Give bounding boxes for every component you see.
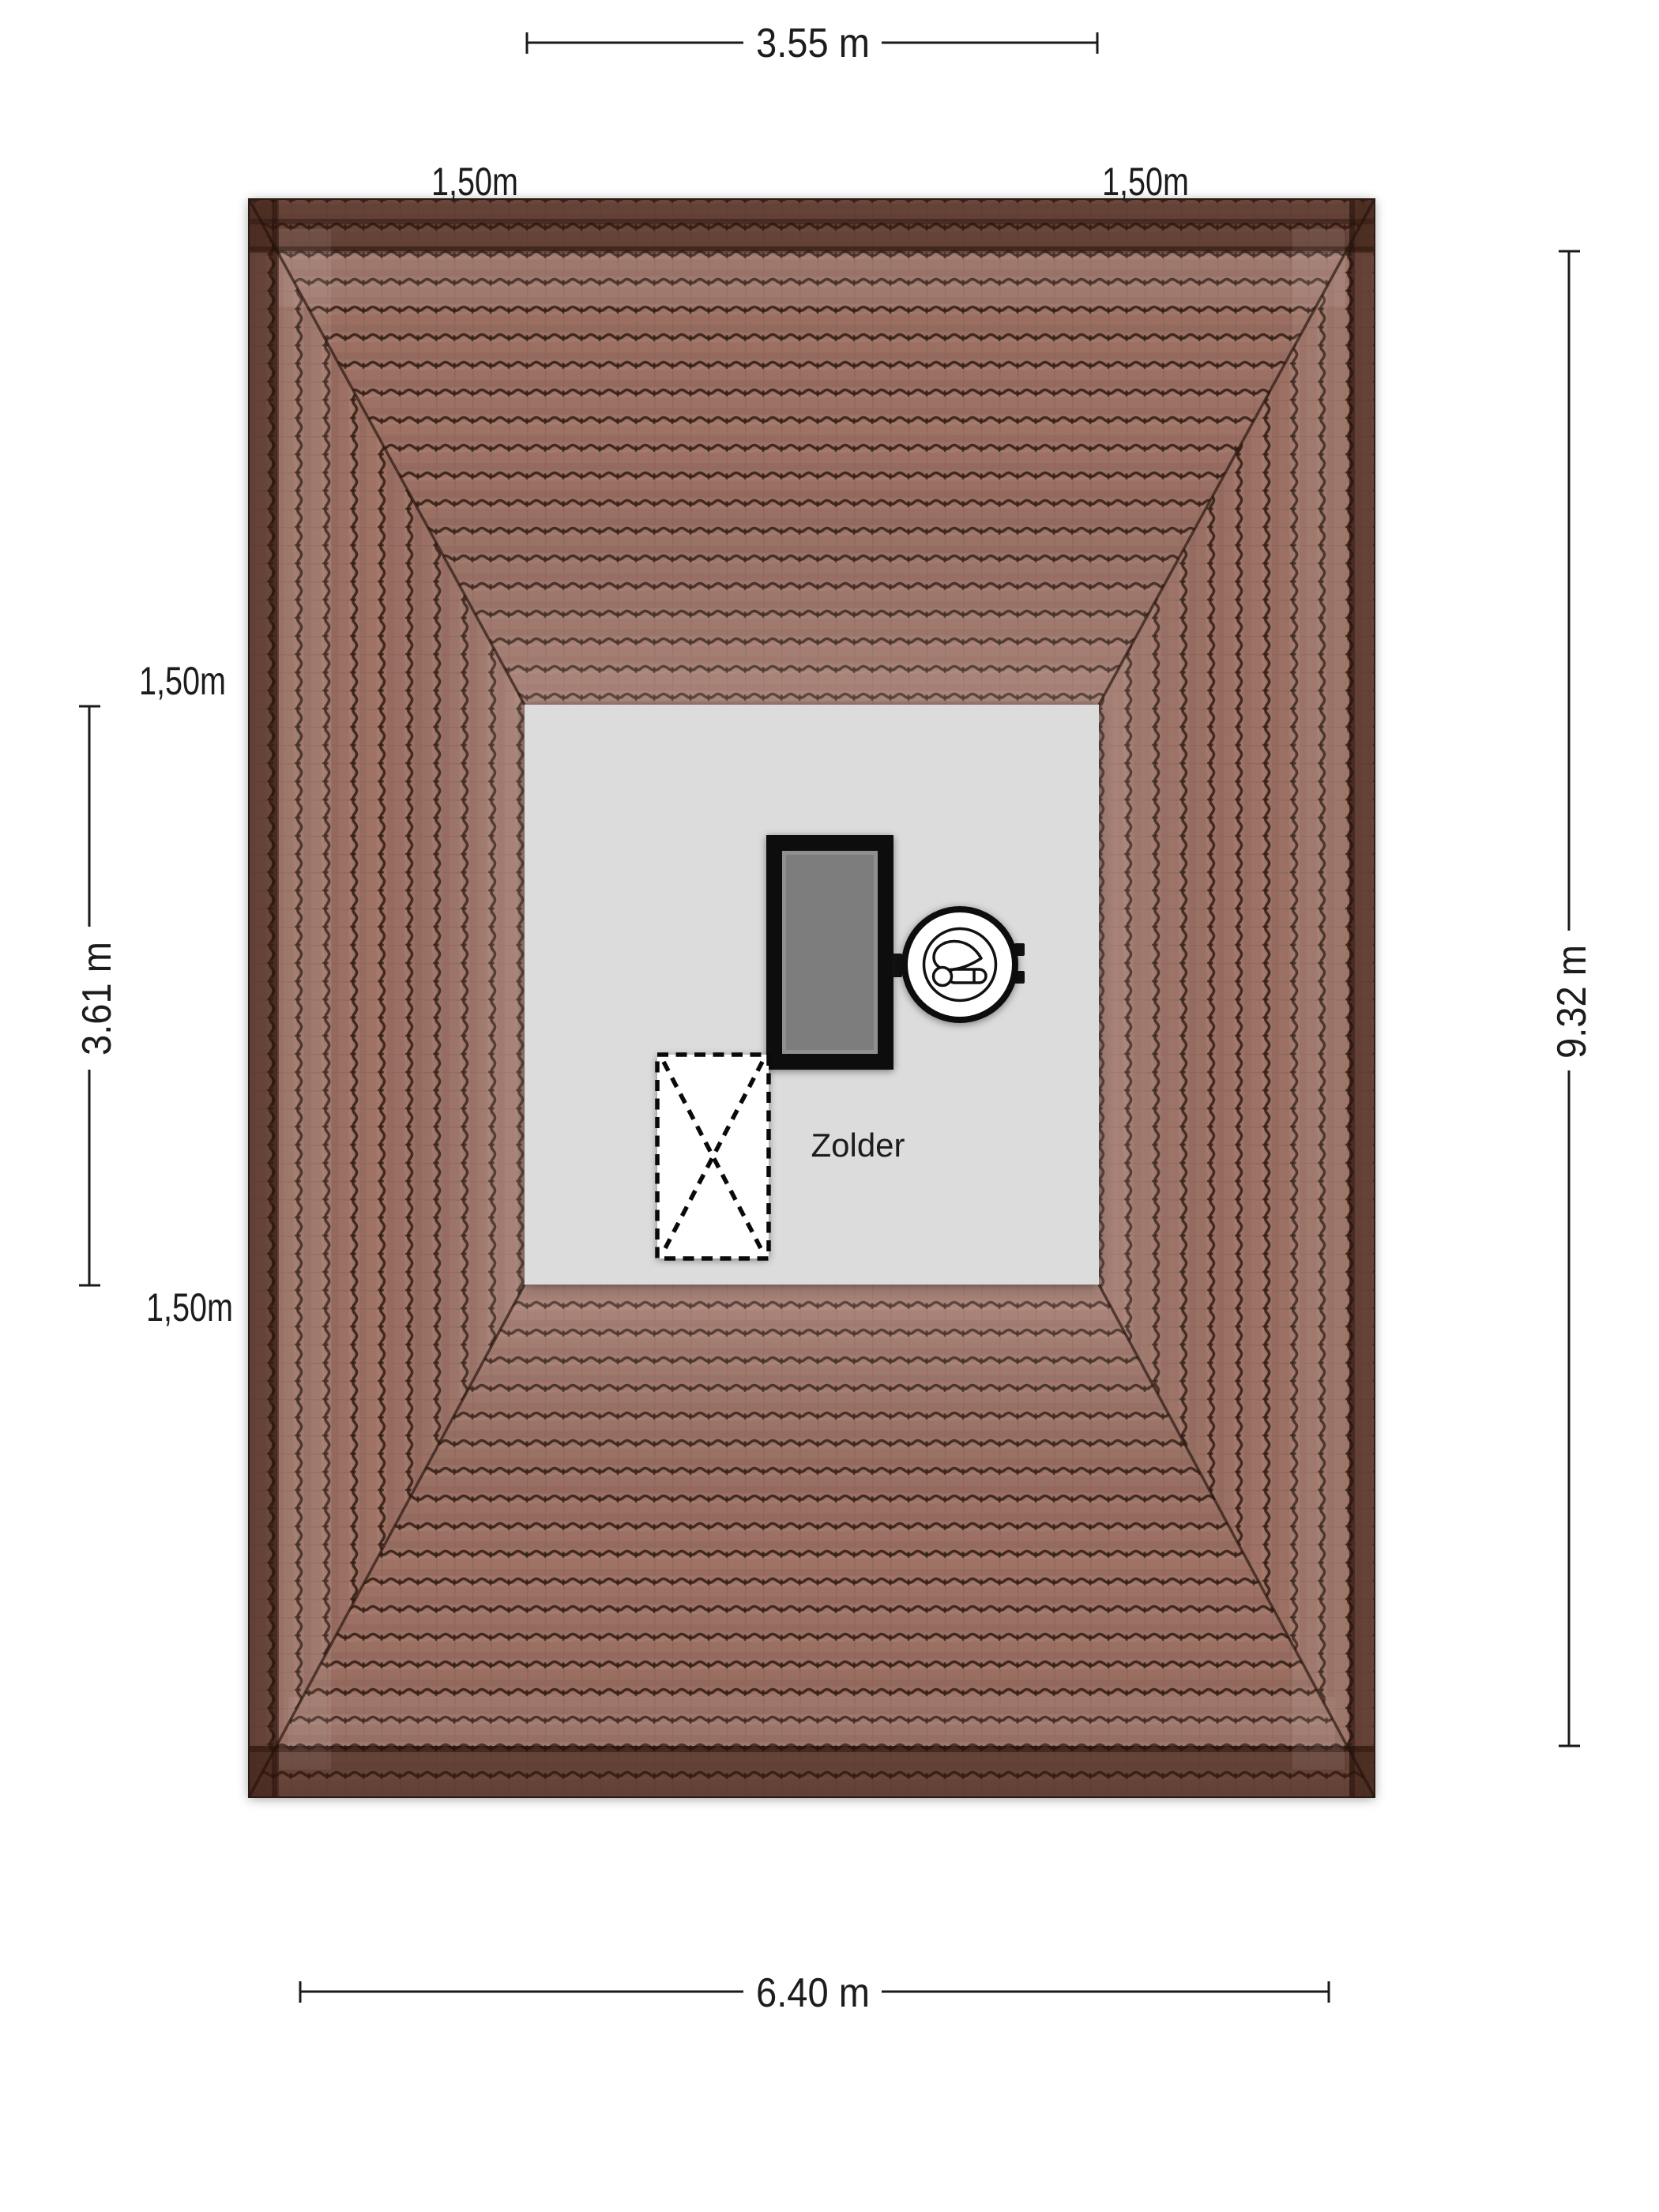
svg-text:3.55 m: 3.55 m <box>756 21 870 66</box>
svg-text:3.61 m: 3.61 m <box>74 942 120 1055</box>
svg-text:1,50m: 1,50m <box>139 659 226 703</box>
svg-text:1,50m: 1,50m <box>146 1285 233 1330</box>
svg-text:1,50m: 1,50m <box>431 160 518 204</box>
svg-text:6.40 m: 6.40 m <box>756 1970 870 2016</box>
svg-text:1,50m: 1,50m <box>1102 160 1189 204</box>
svg-text:Zolder: Zolder <box>811 1127 905 1164</box>
svg-text:9.32 m: 9.32 m <box>1549 945 1595 1059</box>
